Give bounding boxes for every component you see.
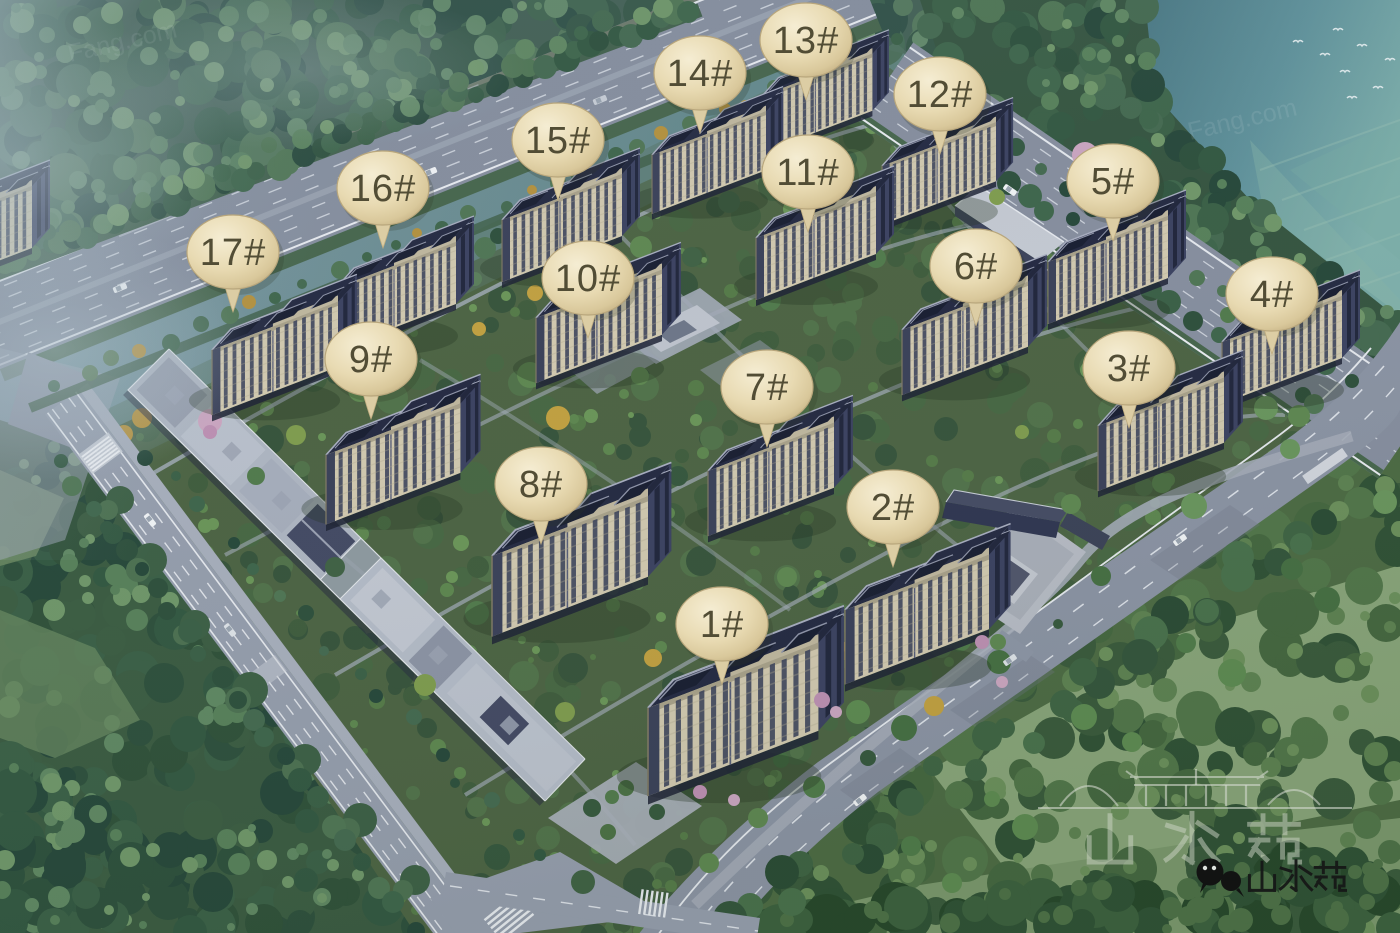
svg-text:16#: 16#: [350, 168, 416, 210]
svg-text:15#: 15#: [525, 120, 591, 162]
svg-text:8#: 8#: [519, 464, 563, 506]
svg-text:2#: 2#: [871, 487, 915, 529]
svg-text:1#: 1#: [700, 604, 744, 646]
svg-text:5#: 5#: [1091, 161, 1135, 203]
svg-text:9#: 9#: [349, 339, 393, 381]
svg-text:4#: 4#: [1250, 274, 1294, 316]
svg-text:6#: 6#: [954, 246, 998, 288]
svg-text:10#: 10#: [555, 258, 621, 300]
svg-text:13#: 13#: [773, 20, 839, 62]
svg-text:3#: 3#: [1107, 348, 1151, 390]
svg-text:14#: 14#: [667, 53, 733, 95]
svg-text:12#: 12#: [907, 74, 973, 116]
svg-text:7#: 7#: [745, 367, 789, 409]
svg-text:11#: 11#: [776, 152, 840, 194]
svg-text:17#: 17#: [200, 232, 266, 274]
